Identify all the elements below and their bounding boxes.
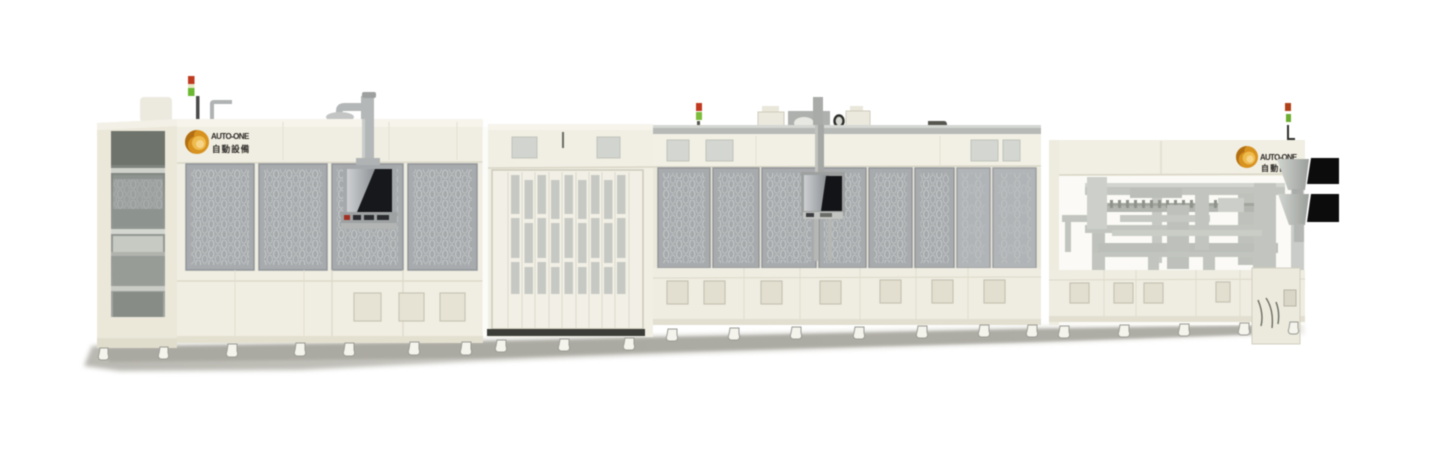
svg-text:自動設備: 自動設備 [212,144,250,154]
svg-text:AUTO-ONE: AUTO-ONE [211,132,250,141]
